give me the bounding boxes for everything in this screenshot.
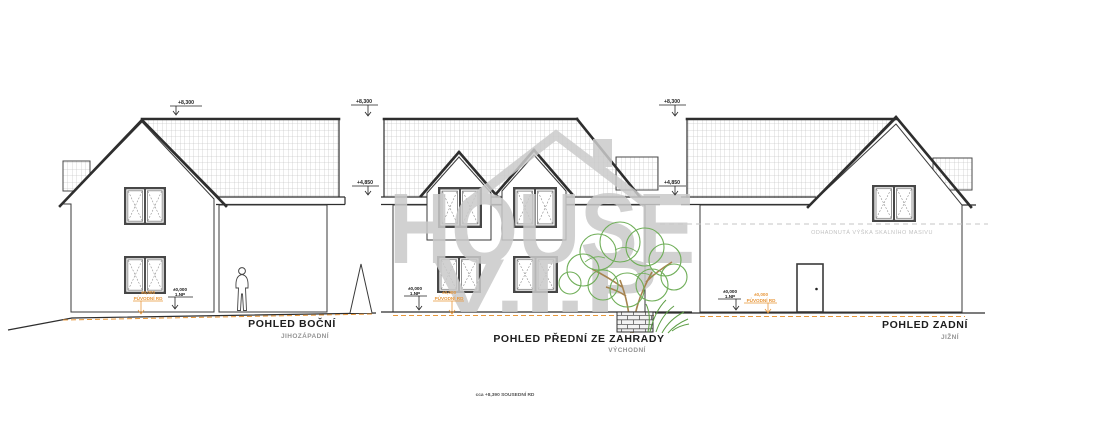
ridge-level-mark: +8,300 bbox=[178, 100, 194, 106]
svg-text:±0,000: ±0,000 bbox=[754, 292, 768, 297]
architectural-drawing-sheet: HOUSE V.I.P +8,300 +8,300 +4,850 +8,300 … bbox=[0, 0, 1101, 430]
brick-wall bbox=[617, 312, 653, 332]
footer-note: cca +8,390 SOUSEDNÍ RD bbox=[476, 390, 535, 398]
elevation-front-title: POHLED PŘEDNÍ ZE ZAHRADY bbox=[493, 332, 664, 345]
svg-text:PŮVODNÍ RD: PŮVODNÍ RD bbox=[747, 296, 777, 303]
window bbox=[125, 188, 165, 224]
eave-level-mark: +4,850 bbox=[357, 180, 373, 186]
elevation-side-subtitle: JIHOZÁPADNÍ bbox=[281, 331, 329, 340]
svg-text:1.NP: 1.NP bbox=[175, 292, 185, 297]
elevation-side-view bbox=[8, 119, 376, 330]
svg-text:PŮVODNÍ RD: PŮVODNÍ RD bbox=[435, 294, 465, 301]
terrain-spike bbox=[350, 264, 372, 313]
elevation-rear-subtitle: JIŽNÍ bbox=[941, 332, 959, 341]
elevation-rear-view bbox=[655, 117, 988, 317]
rock-massif-note: ODHADNUTÁ VÝŠKA SKALNÍHO MASIVU bbox=[811, 229, 933, 236]
svg-text:1.NP: 1.NP bbox=[410, 291, 420, 296]
watermark-chimney-icon bbox=[593, 139, 612, 167]
svg-text:±0,000: ±0,000 bbox=[442, 290, 456, 295]
elevation-front-subtitle: VÝCHODNÍ bbox=[608, 345, 646, 354]
door-handle bbox=[815, 288, 818, 291]
elevation-rear-title: POHLED ZADNÍ bbox=[882, 318, 968, 331]
ridge-level-mark: +8,300 bbox=[664, 99, 680, 105]
eave-level-mark: +4,850 bbox=[664, 180, 680, 186]
window bbox=[873, 186, 915, 221]
elevations-drawing: HOUSE V.I.P +8,300 +8,300 +4,850 +8,300 … bbox=[0, 0, 1101, 430]
side-wing-wall bbox=[219, 205, 327, 312]
svg-text:±0,000: ±0,000 bbox=[141, 290, 155, 295]
ridge-level-mark: +8,300 bbox=[356, 99, 372, 105]
svg-text:1.NP: 1.NP bbox=[725, 294, 735, 299]
elevation-side-title: POHLED BOČNÍ bbox=[248, 317, 336, 330]
door bbox=[797, 264, 823, 312]
window bbox=[125, 257, 165, 293]
svg-text:PŮVODNÍ RD: PŮVODNÍ RD bbox=[134, 294, 164, 301]
